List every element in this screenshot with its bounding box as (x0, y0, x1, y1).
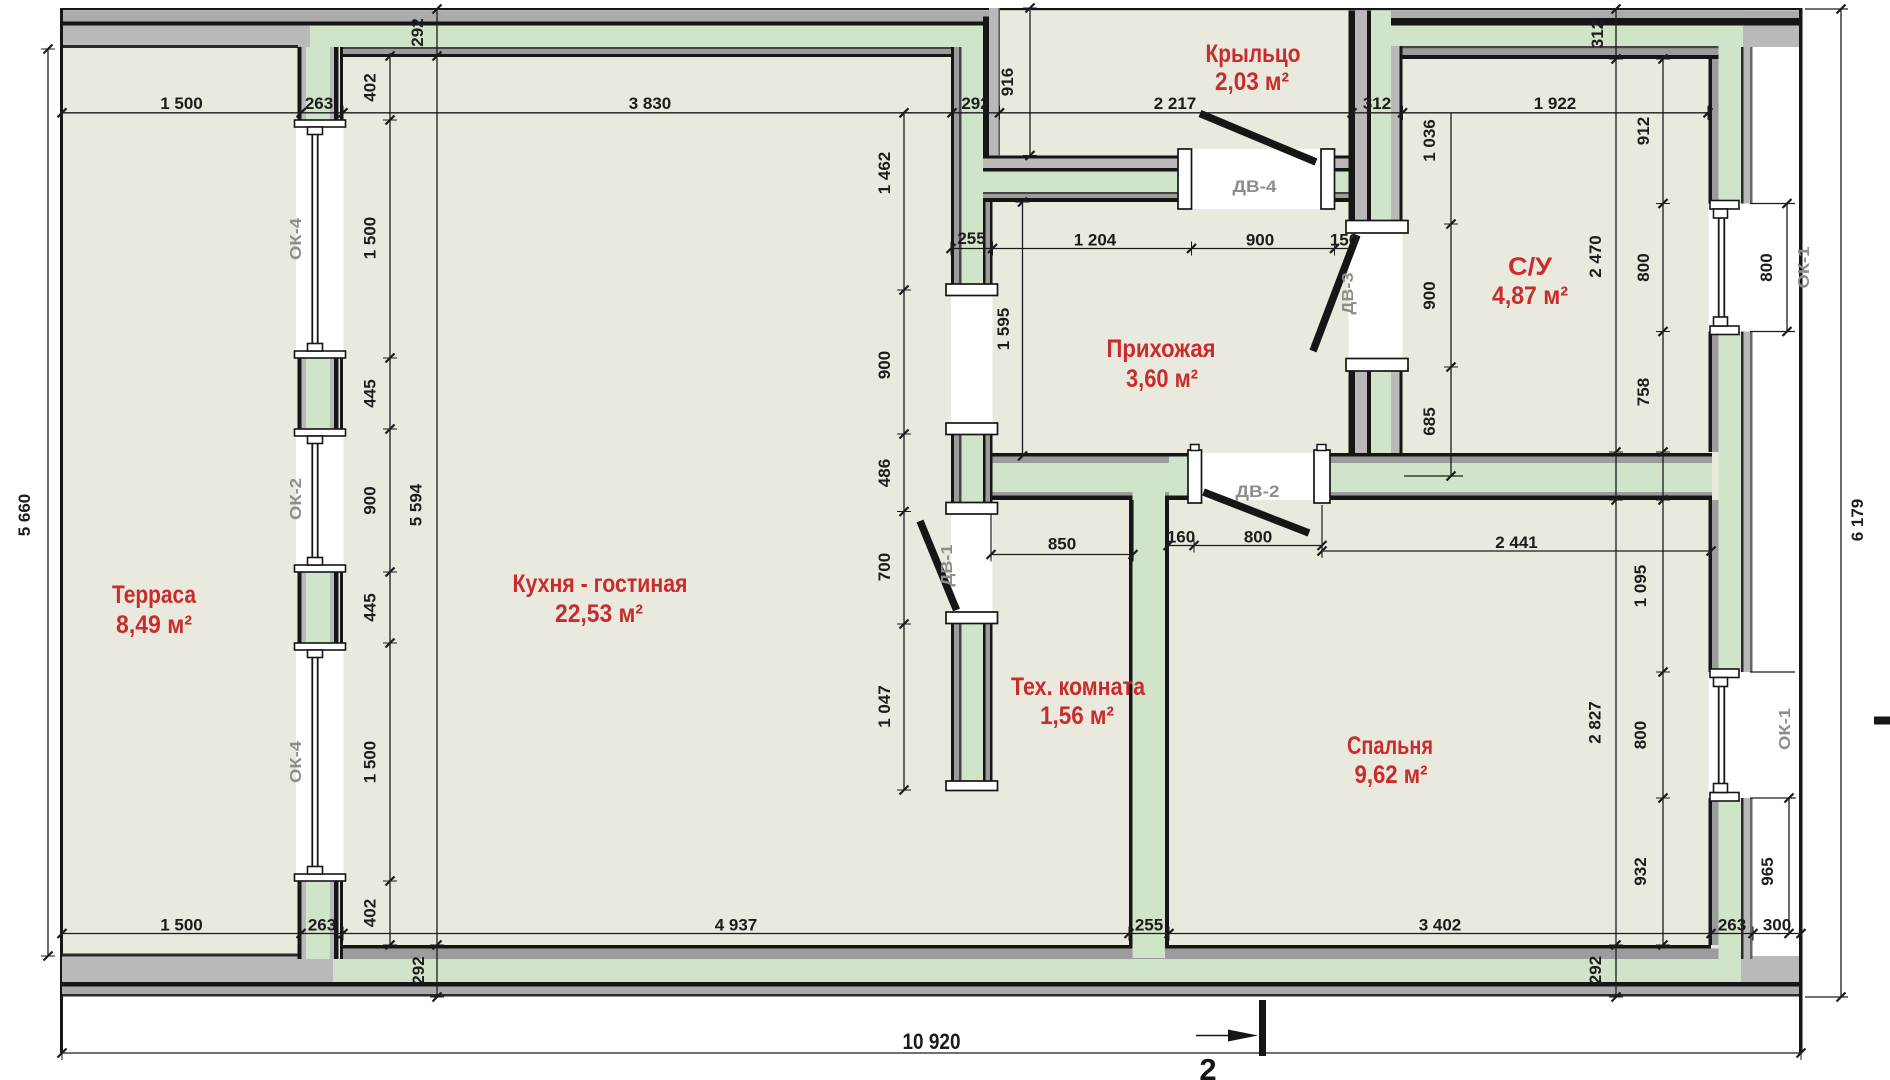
svg-text:4,87 м²: 4,87 м² (1492, 282, 1568, 310)
svg-text:402: 402 (361, 899, 380, 927)
svg-text:3 402: 3 402 (1419, 916, 1462, 935)
svg-text:Прихожая: Прихожая (1107, 335, 1216, 363)
svg-text:1 595: 1 595 (994, 308, 1013, 351)
svg-text:160: 160 (1167, 528, 1195, 547)
svg-text:ОК-4: ОК-4 (288, 218, 305, 260)
svg-text:255: 255 (1135, 916, 1163, 935)
svg-text:1 500: 1 500 (361, 741, 380, 784)
svg-text:Кухня - гостиная: Кухня - гостиная (513, 570, 688, 598)
svg-text:2 470: 2 470 (1586, 235, 1605, 278)
svg-text:Тех. комната: Тех. комната (1011, 673, 1146, 701)
svg-text:800: 800 (1631, 721, 1650, 749)
svg-text:22,53 м²: 22,53 м² (555, 600, 643, 628)
svg-text:292: 292 (1586, 956, 1605, 984)
svg-text:1 095: 1 095 (1631, 565, 1650, 608)
svg-text:445: 445 (361, 593, 380, 621)
svg-text:850: 850 (1048, 535, 1076, 554)
svg-text:900: 900 (1420, 281, 1439, 309)
svg-text:4 937: 4 937 (715, 916, 758, 935)
svg-text:255: 255 (957, 229, 985, 248)
svg-text:150: 150 (1330, 231, 1358, 250)
svg-text:3 830: 3 830 (629, 94, 672, 113)
svg-text:Спальня: Спальня (1347, 732, 1433, 760)
svg-text:ОК-1: ОК-1 (1777, 708, 1794, 750)
svg-text:900: 900 (1246, 231, 1274, 250)
svg-text:312: 312 (1588, 20, 1607, 48)
svg-text:1 500: 1 500 (361, 217, 380, 260)
svg-text:5 594: 5 594 (407, 483, 426, 526)
svg-text:900: 900 (361, 486, 380, 514)
svg-text:263: 263 (305, 94, 333, 113)
svg-text:ОК-2: ОК-2 (288, 478, 305, 520)
svg-text:912: 912 (1634, 117, 1653, 145)
svg-text:2,03 м²: 2,03 м² (1215, 68, 1289, 96)
svg-text:2 827: 2 827 (1586, 701, 1605, 744)
svg-text:Терраса: Терраса (112, 581, 197, 609)
svg-text:5 660: 5 660 (15, 494, 34, 537)
svg-text:932: 932 (1631, 857, 1650, 885)
svg-text:445: 445 (361, 379, 380, 407)
svg-text:8,49 м²: 8,49 м² (116, 611, 192, 639)
svg-text:965: 965 (1758, 857, 1777, 885)
svg-text:1 047: 1 047 (875, 685, 894, 728)
svg-text:292: 292 (409, 956, 428, 984)
svg-text:800: 800 (1244, 528, 1272, 547)
svg-text:402: 402 (361, 73, 380, 101)
svg-text:1 462: 1 462 (875, 152, 894, 195)
svg-text:9,62 м²: 9,62 м² (1355, 761, 1428, 789)
svg-text:900: 900 (875, 351, 894, 379)
svg-text:2: 2 (1199, 1052, 1216, 1080)
svg-text:263: 263 (1718, 916, 1746, 935)
svg-text:263: 263 (308, 916, 336, 935)
svg-text:ДВ-3: ДВ-3 (1340, 272, 1357, 314)
svg-text:1,56 м²: 1,56 м² (1040, 702, 1114, 730)
svg-text:700: 700 (875, 553, 894, 581)
svg-text:1 036: 1 036 (1420, 119, 1439, 162)
svg-text:292: 292 (408, 18, 427, 46)
svg-text:1 500: 1 500 (160, 916, 203, 935)
svg-text:800: 800 (1634, 253, 1653, 281)
svg-text:ДВ-1: ДВ-1 (939, 544, 956, 586)
svg-text:3,60 м²: 3,60 м² (1126, 365, 1198, 393)
svg-text:ОК-4: ОК-4 (288, 741, 305, 783)
svg-text:С/У: С/У (1508, 253, 1552, 281)
svg-text:Крыльцо: Крыльцо (1206, 40, 1301, 68)
svg-text:1 500: 1 500 (160, 94, 203, 113)
svg-text:ОК-1: ОК-1 (1796, 246, 1813, 288)
svg-text:758: 758 (1634, 378, 1653, 406)
svg-text:10 920: 10 920 (903, 1029, 961, 1054)
svg-text:916: 916 (998, 68, 1017, 96)
svg-text:300: 300 (1763, 916, 1791, 935)
svg-text:486: 486 (875, 459, 894, 487)
svg-text:312: 312 (1363, 94, 1391, 113)
svg-text:2 217: 2 217 (1154, 94, 1197, 113)
svg-text:292: 292 (961, 94, 989, 113)
svg-text:1 204: 1 204 (1074, 231, 1117, 250)
svg-text:2 441: 2 441 (1495, 533, 1538, 552)
svg-text:ДВ-2: ДВ-2 (1236, 482, 1280, 501)
svg-text:1 922: 1 922 (1534, 94, 1577, 113)
svg-text:ДВ-4: ДВ-4 (1233, 177, 1278, 196)
svg-text:6 179: 6 179 (1848, 499, 1867, 542)
svg-text:685: 685 (1420, 407, 1439, 435)
svg-text:800: 800 (1757, 253, 1776, 281)
